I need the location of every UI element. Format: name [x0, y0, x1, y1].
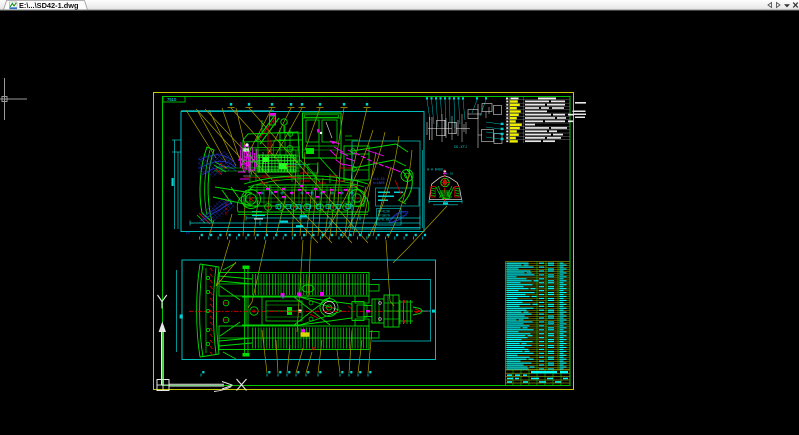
svg-text:tb: tb [186, 231, 190, 235]
svg-text:A-A B400: A-A B400 [427, 168, 443, 172]
svg-text:G=6.8t: G=6.8t [378, 218, 390, 222]
svg-text:CD-XTJ: CD-XTJ [454, 146, 467, 150]
svg-text:7510: 7510 [167, 97, 177, 102]
svg-text:1:20: 1:20 [446, 173, 453, 176]
svg-text:E:\...\SD42-1.dwg: E:\...\SD42-1.dwg [19, 1, 79, 10]
svg-text:n=1800: n=1800 [373, 181, 385, 185]
